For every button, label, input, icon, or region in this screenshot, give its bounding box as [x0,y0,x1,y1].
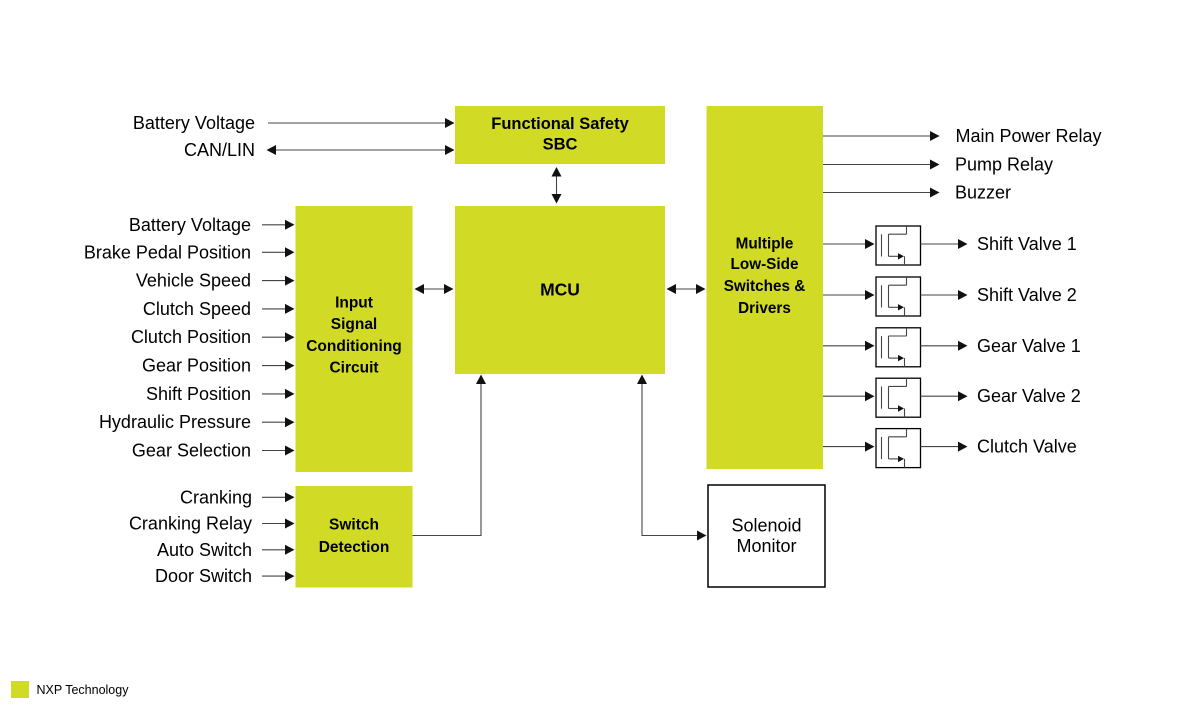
svg-text:Detection: Detection [319,539,390,556]
svg-text:Clutch Valve: Clutch Valve [977,437,1077,457]
svg-text:Shift Valve 1: Shift Valve 1 [977,234,1077,254]
svg-text:CAN/LIN: CAN/LIN [184,140,255,160]
svg-text:Battery Voltage: Battery Voltage [133,113,255,133]
svg-text:Switches &: Switches & [724,278,806,295]
svg-text:Shift Valve 2: Shift Valve 2 [977,285,1077,305]
svg-text:Hydraulic Pressure: Hydraulic Pressure [99,412,251,432]
svg-text:Pump Relay: Pump Relay [955,155,1053,175]
svg-text:Gear Valve 1: Gear Valve 1 [977,336,1081,356]
svg-text:Switch: Switch [329,517,379,534]
svg-text:Conditioning: Conditioning [306,338,402,355]
svg-text:Clutch Position: Clutch Position [131,327,251,347]
svg-text:Clutch Speed: Clutch Speed [143,299,251,319]
svg-text:Battery Voltage: Battery Voltage [129,215,251,235]
svg-text:Brake Pedal Position: Brake Pedal Position [84,242,251,262]
svg-text:Input: Input [335,295,373,312]
svg-text:Cranking Relay: Cranking Relay [129,514,252,534]
svg-text:Buzzer: Buzzer [955,183,1011,203]
svg-text:Low-Side: Low-Side [731,256,799,273]
svg-text:Signal: Signal [331,316,378,333]
svg-text:Gear Selection: Gear Selection [132,441,251,461]
svg-text:SBC: SBC [543,136,578,154]
svg-text:NXP Technology: NXP Technology [37,683,130,697]
svg-text:Circuit: Circuit [329,360,378,377]
svg-text:Main Power Relay: Main Power Relay [956,126,1102,146]
svg-text:Door Switch: Door Switch [155,566,252,586]
svg-text:Functional Safety: Functional Safety [491,115,629,133]
svg-text:Gear Position: Gear Position [142,356,251,376]
svg-text:Drivers: Drivers [738,300,791,317]
svg-text:MCU: MCU [540,280,580,300]
svg-text:Monitor: Monitor [736,536,796,556]
svg-text:Multiple: Multiple [736,235,794,252]
svg-text:Cranking: Cranking [180,487,252,507]
svg-text:Shift Position: Shift Position [146,384,251,404]
svg-text:Solenoid: Solenoid [731,516,801,536]
svg-text:Gear Valve 2: Gear Valve 2 [977,386,1081,406]
svg-text:Auto Switch: Auto Switch [157,540,252,560]
svg-text:Vehicle Speed: Vehicle Speed [136,271,251,291]
